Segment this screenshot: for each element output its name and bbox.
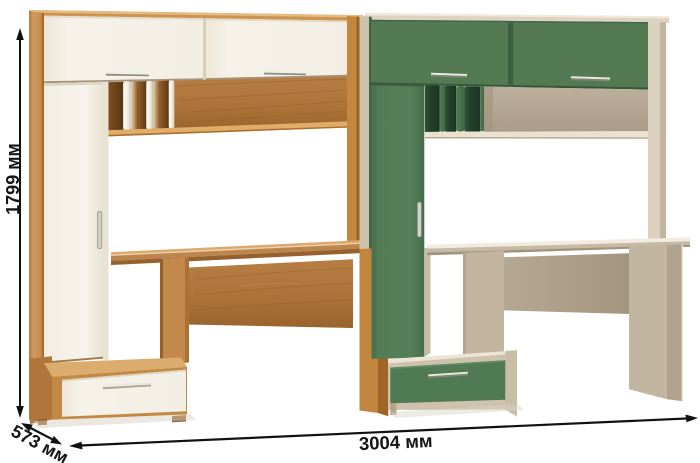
svg-text:3004 мм: 3004 мм xyxy=(358,430,433,454)
svg-text:1799 мм: 1799 мм xyxy=(3,143,23,215)
